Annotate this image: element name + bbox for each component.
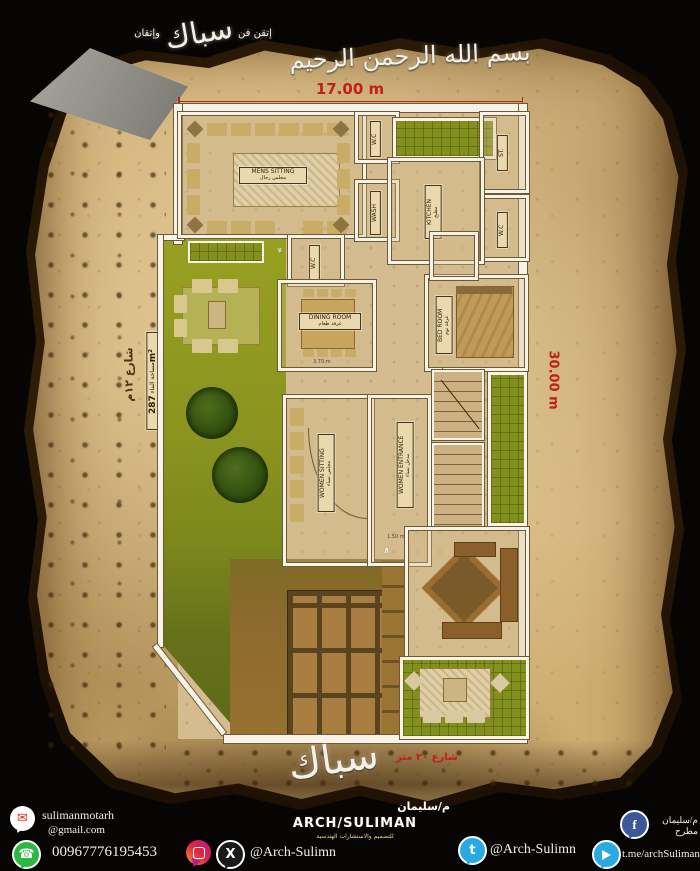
sofa-col-right <box>337 143 350 163</box>
gmail-icon[interactable]: ✉ <box>10 806 35 831</box>
room-wc-entry: W.C <box>288 235 344 286</box>
room-label-wc-top: W.C <box>370 121 381 157</box>
room-mens-sitting: MENS SITTING مجلس رجال <box>178 112 366 238</box>
brand-tagline: للتصميم والاستشارات الهندسية <box>290 833 420 840</box>
room-label-dining: DINING ROOM غرفة طعام <box>299 313 361 330</box>
email-name[interactable]: sulimanmotarh <box>42 808 114 823</box>
room-women-sitting: WOMEN SITTING مجلس نساء <box>283 395 374 566</box>
staircase-lower <box>432 443 484 529</box>
telegram-url[interactable]: t.me/archSuliman <box>622 848 700 860</box>
room-label-mens-sitting: MENS SITTING مجلس رجال <box>239 167 307 184</box>
signature-word-left: وإتقان <box>134 28 160 39</box>
telegram-plane-glyph <box>602 850 611 860</box>
social-handle-left[interactable]: @Arch-Sulimn <box>250 845 336 861</box>
room-label-women-entrance: WOMEN ENTRANCE مدخل نساء <box>397 422 414 508</box>
garden-wall-left <box>158 235 163 647</box>
door-swing-arc <box>308 428 367 519</box>
street-label-bottom: شارع ٢٠ متر <box>396 752 476 763</box>
twitter-handle[interactable]: @Arch-Sulimn <box>490 842 576 858</box>
outer-wall-top <box>174 104 527 112</box>
street-label-left: شارع ١٢م <box>123 330 136 420</box>
entrance-dimension: 1.50 m <box>387 534 405 540</box>
room-bedroom: BED ROOM غرفة نوم <box>425 275 528 371</box>
room-label-wc-right: W.C <box>497 212 508 248</box>
dining-chairs-bottom <box>303 349 314 357</box>
x-icon[interactable]: X <box>216 840 245 869</box>
outdoor-chair <box>490 673 510 693</box>
facebook-icon[interactable]: f <box>620 810 649 839</box>
phone-number[interactable]: 00967776195453 <box>52 844 157 861</box>
living-sofa-bottom <box>442 622 502 639</box>
entrance-chevron: ∧ <box>383 546 390 556</box>
room-label-wash: WASH <box>370 191 381 235</box>
tree <box>186 387 238 439</box>
room-label-kitchen: KITCHEN مطبخ <box>425 185 442 239</box>
staircase-upper <box>432 370 484 440</box>
sofa-row-top <box>207 123 227 136</box>
garden-planter-strip <box>188 241 264 263</box>
living-carpet <box>422 546 507 631</box>
twitter-icon[interactable]: t <box>458 836 487 865</box>
dimension-right-label: 30.00 m <box>546 351 561 421</box>
room-bath-bedroom <box>430 232 478 280</box>
garden-table <box>208 301 226 329</box>
outdoor-sitting-area <box>400 657 529 739</box>
bed-headboard <box>456 286 512 294</box>
outdoor-table <box>443 678 467 702</box>
corner-cushion <box>187 217 204 234</box>
room-dining: DINING ROOM غرفة طعام 3.70 m <box>278 280 376 371</box>
room-label-wc-entry: W.C <box>309 245 320 281</box>
garden-sofa-top <box>192 279 212 293</box>
sofa-col-left <box>187 143 200 163</box>
room-label-bedroom: BED ROOM غرفة نوم <box>436 296 453 354</box>
tree <box>212 447 268 503</box>
garden-sofa-left <box>174 295 187 313</box>
whatsapp-icon[interactable]: ☎ <box>12 840 41 869</box>
room-label-store: ST. <box>497 135 508 171</box>
room-label-women-sitting: WOMEN SITTING مجلس نساء <box>318 434 335 512</box>
signature-monogram: سباك <box>162 10 235 56</box>
sand-area-bottom <box>170 738 650 793</box>
telegram-icon[interactable] <box>592 840 621 869</box>
instagram-icon[interactable] <box>186 840 211 865</box>
room-wc-right: W.C <box>480 195 529 261</box>
room-living <box>405 527 529 661</box>
architect-name-english: ARCH/SULIMAN <box>280 816 430 831</box>
architect-name-arabic: م/سليمان <box>380 800 450 813</box>
bed <box>456 286 514 358</box>
dining-chairs-top <box>303 289 314 297</box>
garage-car-porch <box>230 559 405 735</box>
floor-plan: MENS SITTING مجلس رجال W.C WASH ST. W.C … <box>150 95 530 745</box>
sofa-row-bottom <box>207 221 227 234</box>
dining-dimension: 3.70 m <box>313 359 331 365</box>
wardrobe-column <box>290 408 304 426</box>
living-sofa-right <box>500 548 518 622</box>
door-chevron: » <box>274 247 284 253</box>
poster-canvas: إتقن فن سباك وإتقان بسم الله الرحمن الرح… <box>0 0 700 871</box>
facebook-name[interactable]: م/سليمان مطرح <box>648 815 698 837</box>
planter-right <box>488 372 527 526</box>
corner-cushion <box>333 217 350 234</box>
room-store: ST. <box>480 112 529 193</box>
signature-word-right: إتقن فن <box>238 28 272 39</box>
instagram-glyph <box>193 847 205 859</box>
living-sofa-top <box>454 542 496 557</box>
email-domain[interactable]: @gmail.com <box>48 824 105 836</box>
corner-cushion <box>187 121 204 138</box>
corner-cushion <box>333 121 350 138</box>
pergola-grid-roof <box>288 591 390 743</box>
garden-sofa-bottom <box>192 339 212 353</box>
outdoor-sofa-row <box>423 710 441 723</box>
